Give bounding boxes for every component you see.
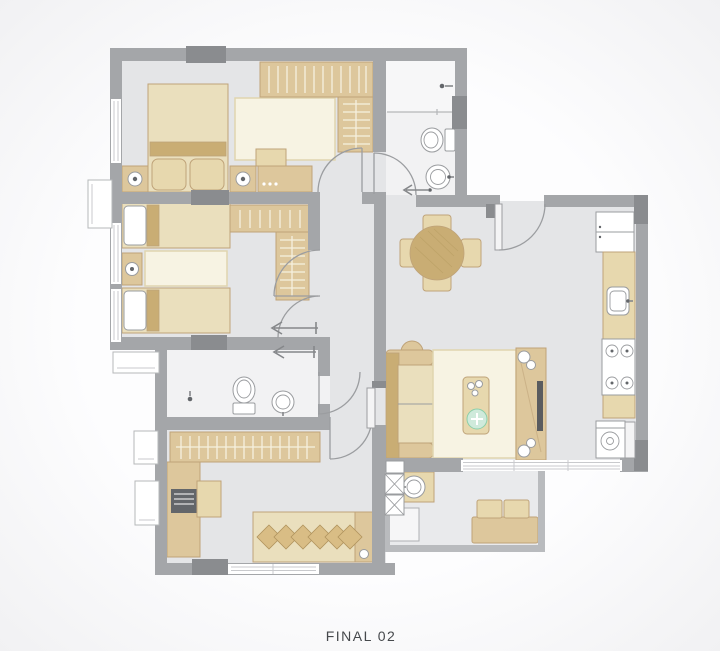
nightstand-icon <box>230 166 256 192</box>
bed-pillow <box>190 159 224 190</box>
lamp-center <box>241 177 245 181</box>
bathroom-window <box>452 96 467 129</box>
coffee-table-icon <box>463 377 489 434</box>
bed-pillow <box>124 291 146 330</box>
ac-unit-icon <box>134 431 158 464</box>
ac-unit-icon <box>135 481 159 525</box>
toilet-icon <box>233 377 255 414</box>
window-frame <box>111 99 121 163</box>
table-lamp-icon <box>360 550 369 559</box>
wall <box>308 192 320 250</box>
service-shaft-icon <box>385 495 404 515</box>
decor-plate <box>476 381 483 388</box>
nightstand-icon <box>122 166 148 192</box>
dresser-knob <box>262 182 265 185</box>
wall <box>373 48 386 152</box>
basin <box>426 165 450 189</box>
wall <box>374 204 386 385</box>
bathroom-1-shower-floor <box>386 61 455 112</box>
door-jamb <box>486 204 495 218</box>
balcony-chair-icon <box>477 500 502 518</box>
shower-head <box>440 84 445 89</box>
basin <box>272 391 294 413</box>
dresser-icon <box>258 166 312 192</box>
bed-runner <box>147 205 159 246</box>
ac-unit-icon <box>88 180 112 228</box>
dresser-body <box>258 166 312 192</box>
wardrobe-top <box>260 62 373 97</box>
desk-icon <box>197 481 221 517</box>
ac-body <box>113 352 159 373</box>
basin <box>403 476 425 498</box>
single-bed-icon <box>253 512 373 562</box>
balcony-bench-icon <box>472 517 538 543</box>
toilet-tank <box>233 403 255 414</box>
wall-niche <box>186 46 226 63</box>
wall <box>544 195 648 207</box>
bench-icon <box>256 149 286 166</box>
window-icon <box>111 99 121 163</box>
door-jamb <box>372 381 386 388</box>
balcony-wall <box>538 465 545 552</box>
single-bed-icon <box>122 203 230 248</box>
burner-center <box>626 350 629 353</box>
pocket-door-leaf <box>367 388 375 428</box>
speaker-icon <box>527 361 536 370</box>
balcony-wall <box>383 545 545 552</box>
slide-arrow-dot <box>428 188 432 192</box>
bed-runner <box>150 142 226 156</box>
burner-center <box>626 382 629 385</box>
wall <box>372 458 385 575</box>
nightstand-icon <box>122 253 142 285</box>
burner-center <box>611 350 614 353</box>
window-frame <box>111 289 121 342</box>
printer-icon <box>171 489 197 513</box>
service-shaft-icon <box>385 474 404 494</box>
fridge-handle <box>599 236 601 238</box>
service-shafts <box>385 461 404 515</box>
bed-runner <box>147 290 159 331</box>
corner-column <box>634 195 648 224</box>
bed-pillow <box>124 206 146 245</box>
wall <box>636 195 648 472</box>
toilet-bowl <box>233 377 255 403</box>
round-dining-table-icon <box>410 226 464 280</box>
wall <box>318 350 330 376</box>
plant-icon <box>467 409 487 429</box>
decor-plate <box>468 383 475 390</box>
kitchen-sink-icon <box>607 287 633 315</box>
door-leaf <box>495 204 502 250</box>
decor-plate <box>472 390 478 396</box>
wall <box>416 195 467 207</box>
double-bed-icon <box>148 84 228 192</box>
fridge-handle <box>599 226 601 228</box>
balcony-chair-icon <box>504 500 529 518</box>
window-icon <box>111 223 121 284</box>
service-door-leaf <box>625 422 635 458</box>
cooktop-icon <box>602 339 635 395</box>
sofa-icon <box>386 350 433 458</box>
wall <box>110 48 467 61</box>
ac-unit-icon <box>113 352 159 373</box>
wall-niche <box>191 335 227 350</box>
shower-head <box>188 397 193 402</box>
floor-plan: FINAL 02 <box>0 0 720 651</box>
wardrobe-icon <box>170 432 320 462</box>
basin-tap-dot <box>447 175 451 179</box>
ac-body <box>135 481 159 525</box>
burner-center <box>611 382 614 385</box>
wall-niche <box>192 559 228 575</box>
dresser-knob <box>268 182 271 185</box>
bed-pillow <box>152 159 186 190</box>
washer-body <box>596 421 625 458</box>
wall <box>155 417 330 430</box>
washing-machine-icon <box>596 421 625 458</box>
lamp-center <box>130 267 134 271</box>
wall <box>372 425 386 458</box>
tv-console-icon <box>516 348 546 460</box>
tv-icon <box>537 381 543 431</box>
wall <box>318 404 330 418</box>
sliding-glass-door-icon <box>461 460 622 471</box>
wall-niche-box <box>386 461 404 473</box>
speaker-icon <box>527 439 536 448</box>
wall-niche <box>191 190 229 205</box>
living-room <box>386 341 546 460</box>
corner-column <box>634 440 648 471</box>
single-bed-icon <box>122 288 230 333</box>
sofa-back <box>386 353 399 458</box>
printer-body <box>171 489 197 513</box>
toilet-icon <box>421 128 455 152</box>
plan-label: FINAL 02 <box>326 628 397 644</box>
refrigerator-icon <box>596 212 634 252</box>
window-icon <box>228 564 319 574</box>
lamp-center <box>133 177 137 181</box>
dresser-knob <box>274 182 277 185</box>
window-frame <box>111 223 121 284</box>
toilet-tank <box>445 129 455 151</box>
rug-icon <box>145 251 227 286</box>
window-icon <box>111 289 121 342</box>
